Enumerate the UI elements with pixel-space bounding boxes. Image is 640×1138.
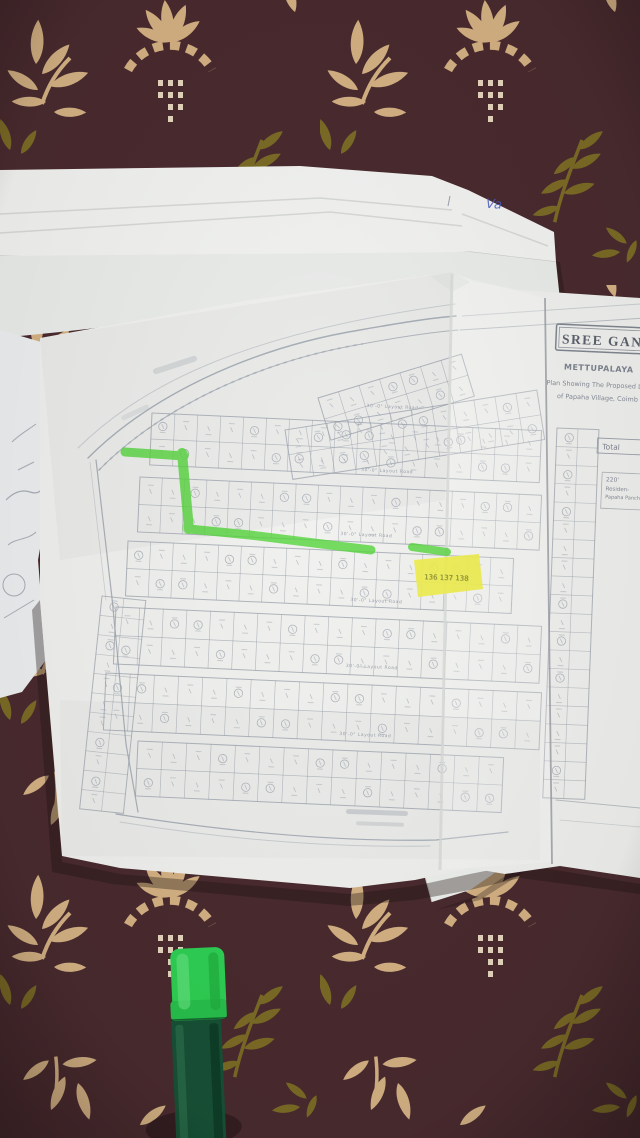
highlighter-blob <box>177 449 189 461</box>
highlight-numbers-blur: 136 137 138 <box>424 574 469 584</box>
plot-digit-smudge <box>321 468 326 469</box>
plot-digit-smudge <box>424 439 429 440</box>
pen-cap-highlight <box>176 953 190 1009</box>
highlighter-blob <box>182 522 194 534</box>
plot-digit-smudge <box>96 756 101 757</box>
plot-digit-smudge <box>101 709 106 710</box>
plot-digit-smudge <box>100 717 105 718</box>
plot-digit-smudge <box>298 459 303 460</box>
total-label: Total <box>601 442 620 452</box>
highlighter-segment-short <box>412 547 447 552</box>
photo-canvas: Va <box>0 0 640 1138</box>
info-line-1: 220' <box>606 476 620 484</box>
plot-digit-smudge <box>97 748 102 749</box>
plot-digit-smudge <box>105 671 110 672</box>
plot-digit-smudge <box>340 452 345 453</box>
plot-digit-smudge <box>382 446 387 447</box>
plot-digit-smudge <box>405 454 410 455</box>
photo-scene: Va <box>0 0 640 1138</box>
info-line-2: Residen- <box>605 486 629 493</box>
plot-digit-smudge <box>315 431 320 432</box>
plot-digit-smudge <box>104 678 109 679</box>
highlighter-segment-vertical <box>182 453 189 529</box>
plot-digit-smudge <box>380 433 385 434</box>
plot-digit-smudge <box>109 632 114 633</box>
plot-digit-smudge <box>108 640 113 641</box>
plot-digit-smudge <box>112 601 117 602</box>
plot-digit-smudge <box>441 411 446 412</box>
plot-digit-smudge <box>92 794 97 795</box>
plot-digit-smudge <box>363 461 368 462</box>
plot-digit-smudge <box>296 446 301 447</box>
plot-digit-smudge <box>422 426 427 427</box>
plot-digit-smudge <box>338 440 343 441</box>
plot-digit-smudge <box>93 787 98 788</box>
handwritten-note: Va <box>485 197 502 213</box>
highlighter-segment-top <box>125 452 184 456</box>
